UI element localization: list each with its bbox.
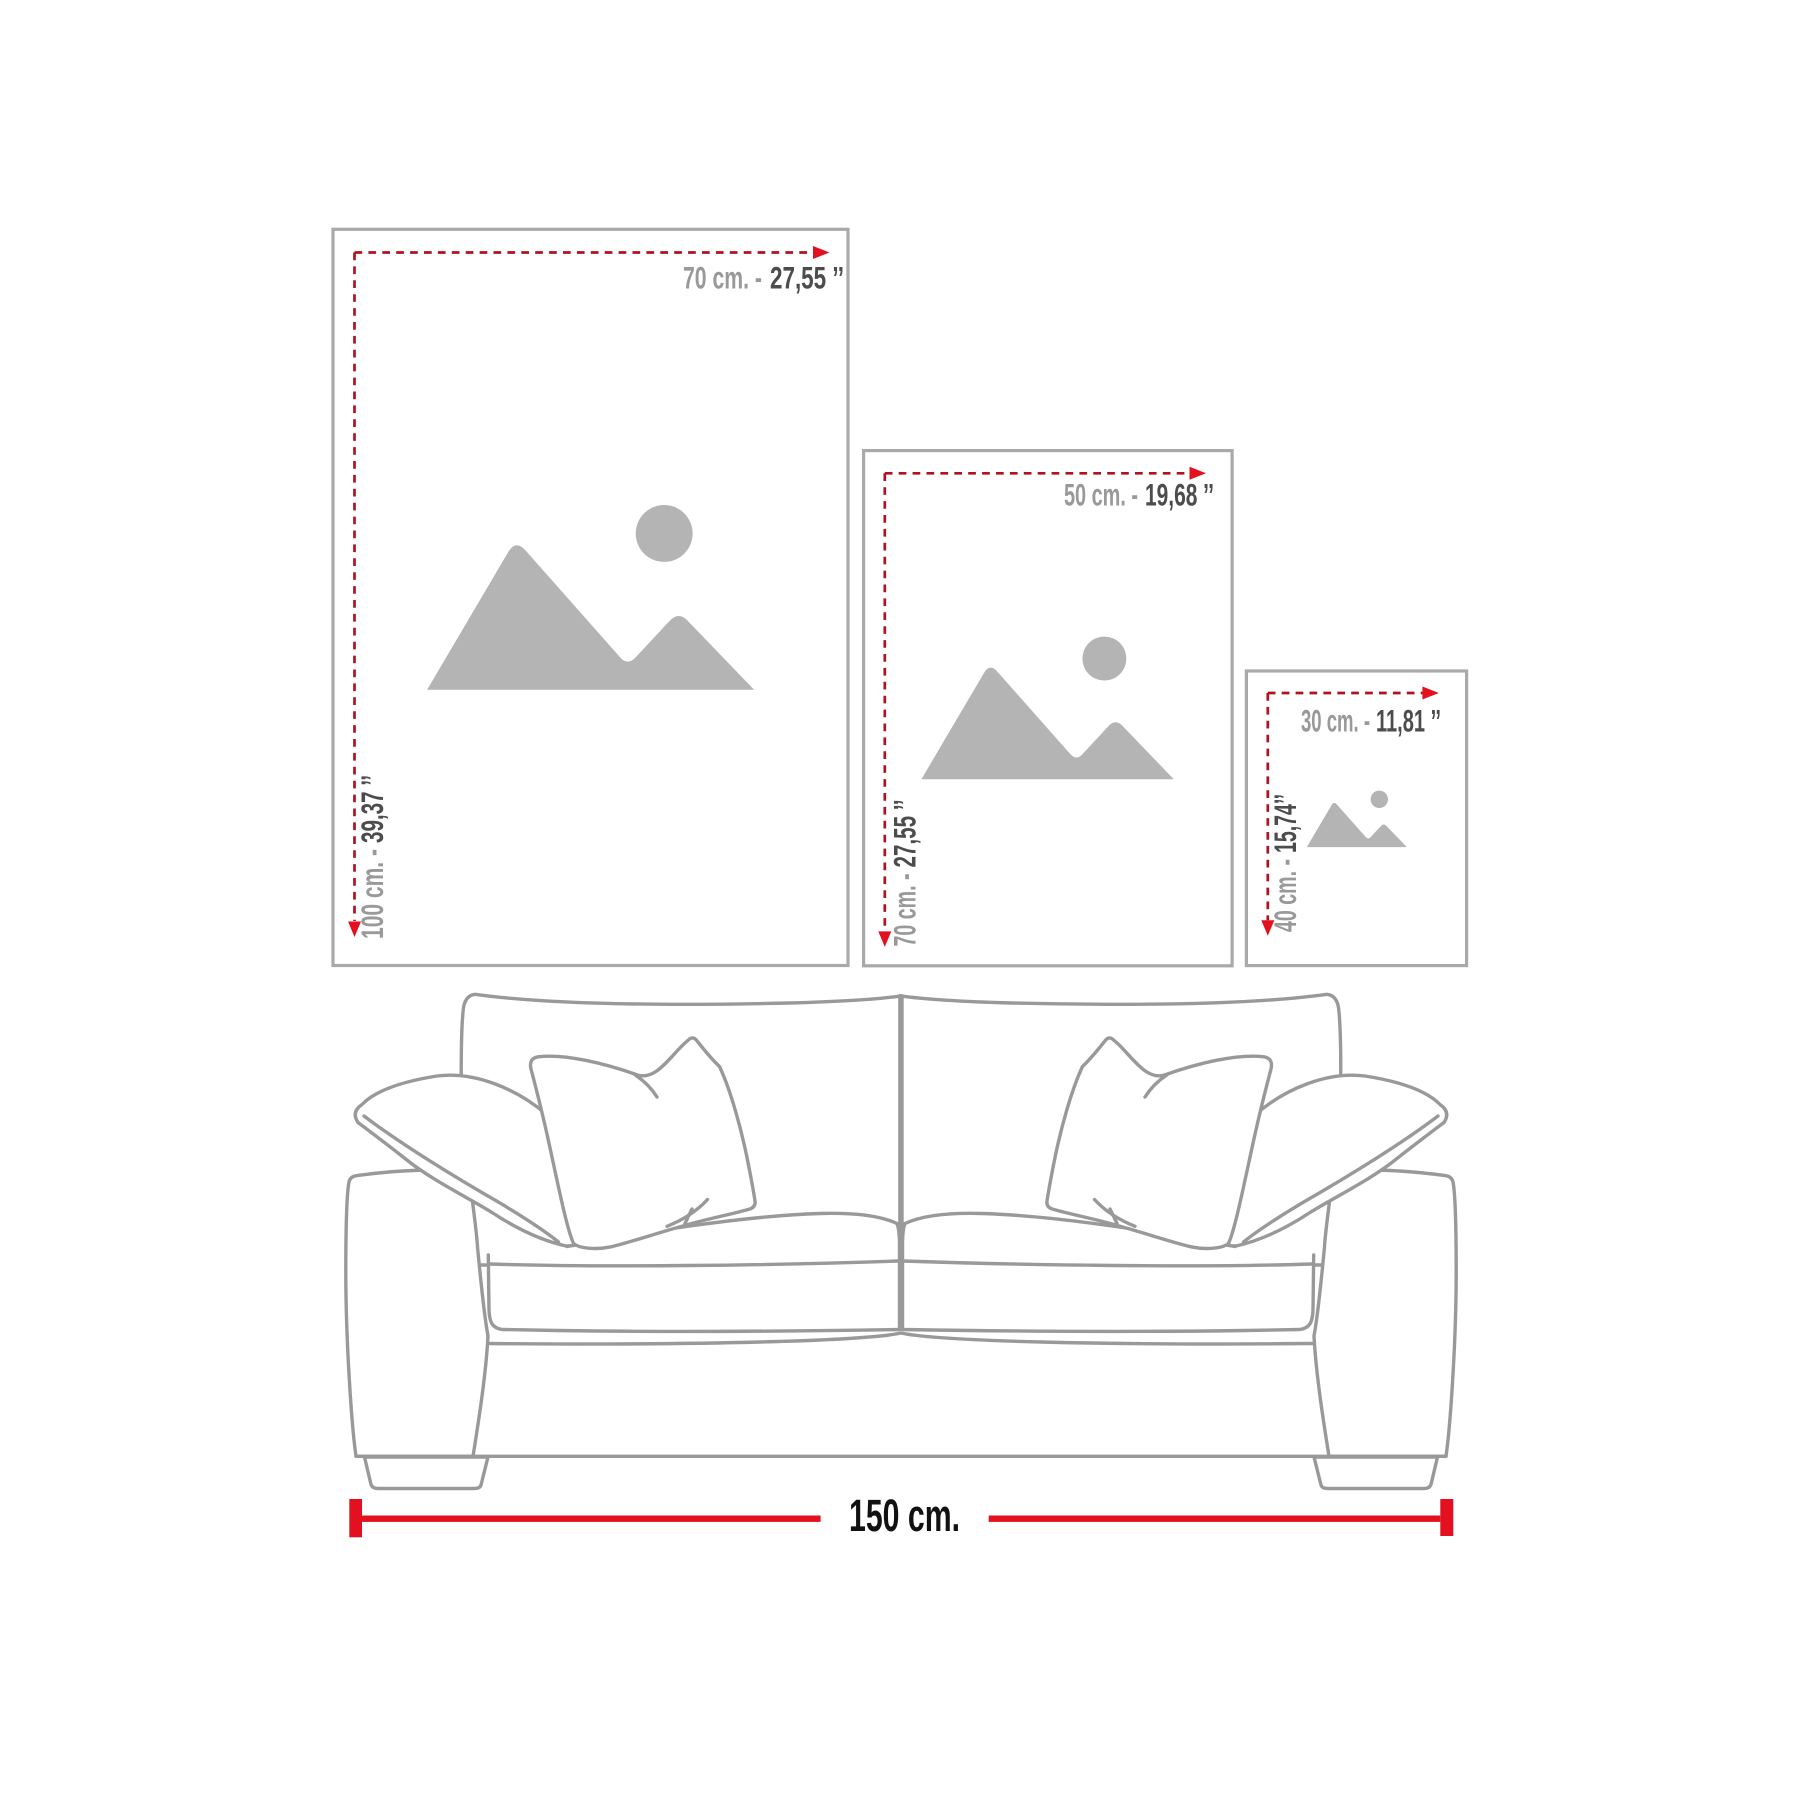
- svg-text:19,68 ’’: 19,68 ’’: [1145, 477, 1214, 513]
- svg-text:50 cm. -: 50 cm. -: [1064, 477, 1138, 513]
- svg-text:27,55 ’’: 27,55 ’’: [887, 800, 923, 868]
- svg-text:100 cm. -: 100 cm. -: [354, 849, 390, 939]
- svg-text:15,74’’: 15,74’’: [1267, 794, 1303, 853]
- svg-text:150 cm.: 150 cm.: [849, 1490, 960, 1541]
- svg-text:30 cm. -: 30 cm. -: [1301, 703, 1370, 739]
- svg-text:70 cm. -: 70 cm. -: [683, 260, 762, 296]
- svg-text:11,81 ’’: 11,81 ’’: [1376, 703, 1441, 739]
- svg-text:40 cm. -: 40 cm. -: [1267, 859, 1303, 932]
- svg-text:70 cm. -: 70 cm. -: [887, 874, 923, 947]
- svg-text:39,37 ’’: 39,37 ’’: [354, 775, 390, 843]
- svg-text:27,55 ’’: 27,55 ’’: [770, 260, 844, 296]
